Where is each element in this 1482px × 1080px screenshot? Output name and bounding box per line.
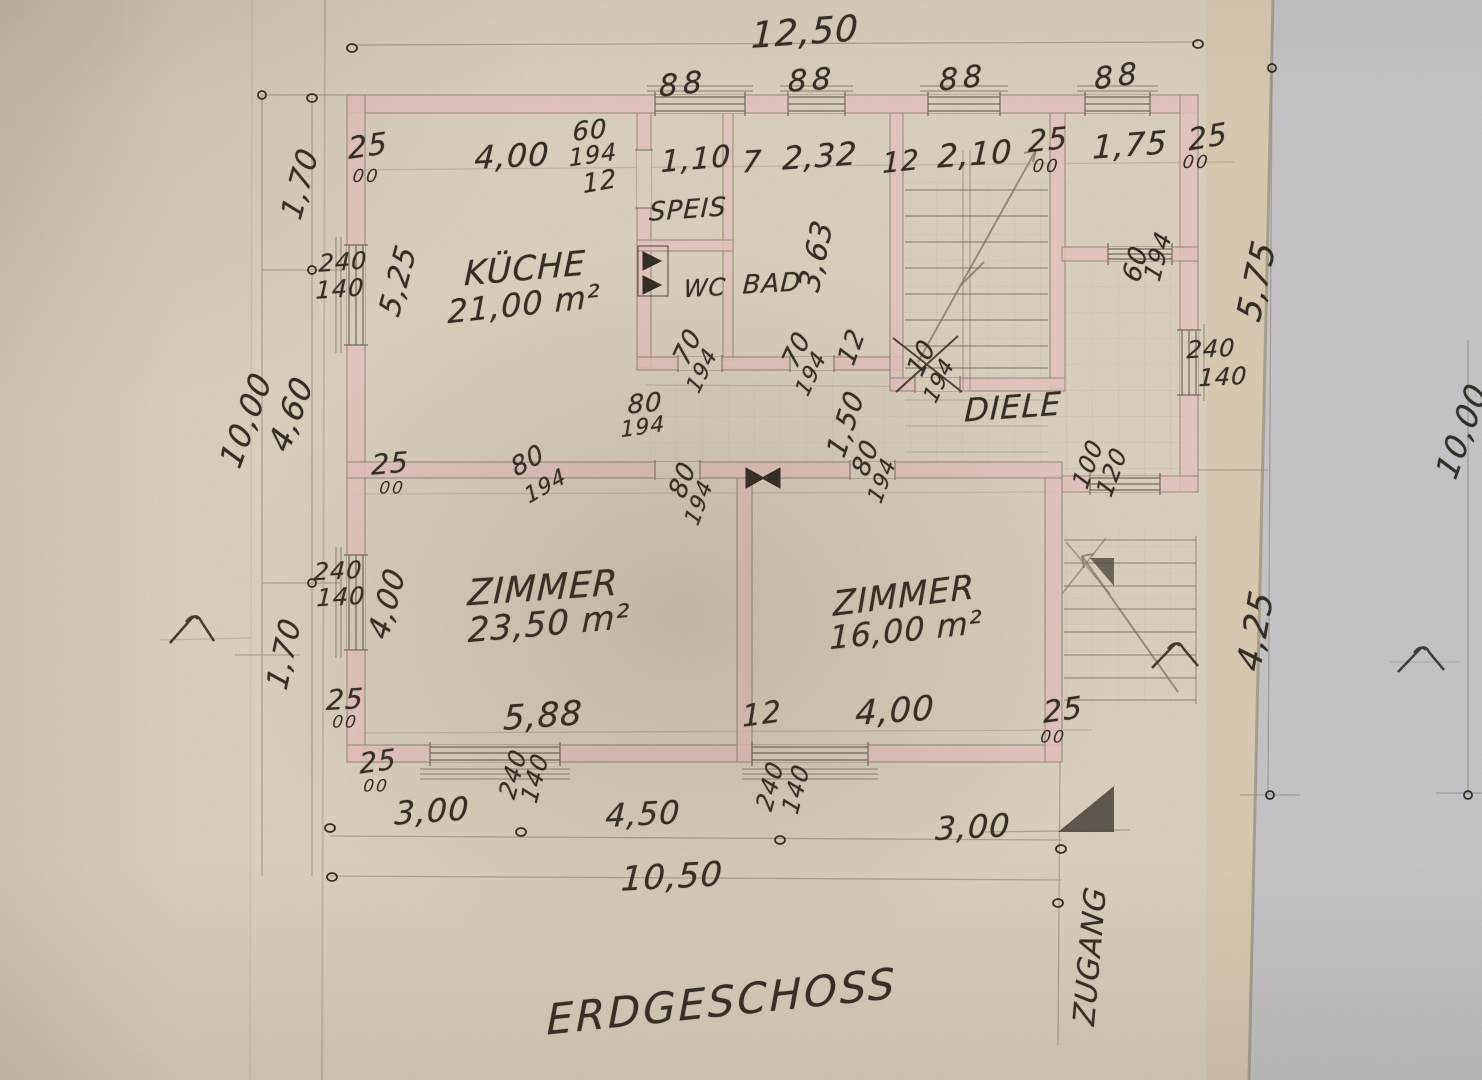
dim-label: 140: [316, 584, 366, 611]
dim-overall-width: 12,50: [750, 11, 859, 55]
dim-sub-label: 00: [1039, 730, 1066, 747]
dim-label: 194: [620, 414, 665, 442]
window-mark: 88: [939, 61, 987, 96]
dim-sub-label: 00: [331, 715, 358, 732]
window-mark: 88: [1094, 59, 1143, 96]
dim-label: 240: [1186, 336, 1236, 363]
dim-sub-label: 00: [352, 168, 381, 186]
dim-label: 5,88: [503, 696, 584, 736]
dim-label: 1,75: [1092, 126, 1168, 163]
dim-label: 3,00: [935, 809, 1012, 845]
dim-label: 7: [741, 147, 763, 178]
dim-label: 2,10: [937, 135, 1013, 172]
dim-label: 4,00: [855, 691, 936, 731]
window-mark: 88: [787, 64, 836, 98]
dim-label: 12: [834, 325, 870, 369]
dim-label: 194: [1140, 228, 1175, 284]
dim-label: 5,25: [376, 241, 422, 320]
dim-label: 25: [1043, 693, 1084, 729]
room-label-speis: SPEIS: [649, 194, 728, 226]
dim-label: 140: [315, 275, 365, 303]
dim-sub-label: 00: [1182, 154, 1211, 172]
window-mark: 88: [659, 67, 707, 102]
dim-label: 25: [371, 448, 409, 479]
dim-label: 1,10: [660, 142, 731, 178]
dim-overall-bottom: 10,50: [620, 857, 724, 896]
dim-label: 12: [882, 146, 919, 178]
dim-label: 4,25: [1233, 587, 1280, 675]
dim-sub-label: 00: [362, 779, 389, 796]
dim-label: 12: [742, 697, 783, 733]
dim-sub-label: 00: [1032, 158, 1061, 176]
dim-label: 25: [348, 129, 389, 165]
dim-sub-label: 00: [378, 481, 405, 498]
dim-label: 4,00: [474, 138, 551, 174]
dim-label: 4,50: [605, 796, 682, 832]
dim-label: 5,75: [1232, 237, 1281, 326]
dim-label: 12: [582, 166, 618, 198]
dim-label: 3,63: [795, 217, 838, 296]
dim-label: 1,70: [263, 615, 306, 694]
dim-overall-height-right: 10,00: [1431, 379, 1482, 484]
dim-label: 1,70: [278, 144, 324, 223]
dim-label: 240: [313, 558, 363, 585]
dim-label: 140: [1198, 364, 1248, 391]
dim-label: 3,00: [394, 792, 470, 829]
room-label-diele: DIELE: [964, 388, 1062, 427]
dim-label: 240: [318, 248, 368, 276]
dim-label: 25: [325, 685, 364, 715]
dim-label: 4,00: [365, 564, 411, 643]
floorplan-photo: 12,50 88 88 88 88 25 00 4,00 60 194 12 1…: [0, 0, 1482, 1080]
handwritten-labels: 12,50 88 88 88 88 25 00 4,00 60 194 12 1…: [0, 0, 1482, 1080]
dim-label: 2,32: [782, 137, 858, 174]
room-label-zugang: ZUGANG: [1070, 884, 1112, 1027]
sheet-title: ERDGESCHOSS: [547, 962, 898, 1041]
dim-label: 25: [359, 745, 397, 778]
room-label-wc: WC: [683, 275, 727, 301]
dim-label: 25: [1187, 119, 1229, 156]
dim-label: 25: [1028, 124, 1068, 158]
